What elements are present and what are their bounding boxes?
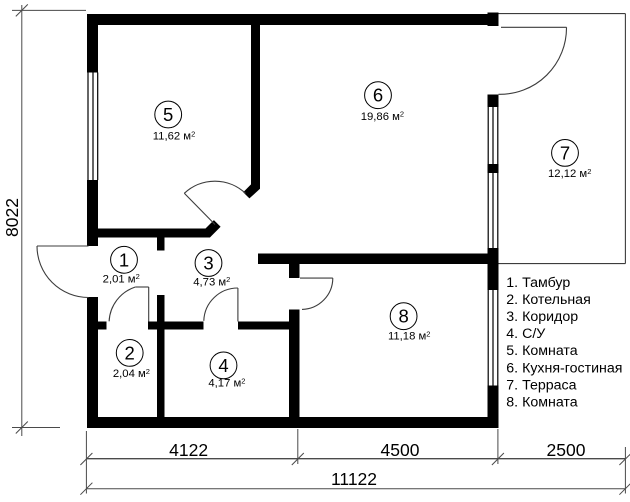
svg-text:3. Коридор: 3. Коридор (506, 309, 578, 325)
svg-text:4122: 4122 (169, 440, 208, 460)
svg-text:8022: 8022 (2, 198, 22, 237)
svg-text:11,62 м2: 11,62 м2 (153, 129, 196, 142)
svg-text:8. Комната: 8. Комната (506, 395, 577, 411)
svg-text:4,73 м2: 4,73 м2 (193, 275, 230, 288)
svg-text:8: 8 (398, 306, 408, 327)
svg-text:19,86 м2: 19,86 м2 (361, 110, 404, 123)
svg-text:2,01 м2: 2,01 м2 (103, 272, 140, 285)
svg-text:7: 7 (560, 142, 570, 163)
svg-text:5: 5 (163, 104, 173, 125)
svg-text:2: 2 (125, 342, 135, 363)
svg-text:1. Тамбур: 1. Тамбур (506, 275, 570, 291)
svg-text:3: 3 (203, 253, 213, 274)
svg-text:2500: 2500 (547, 440, 586, 460)
svg-text:1: 1 (119, 249, 129, 270)
svg-text:4,17 м2: 4,17 м2 (208, 377, 245, 390)
svg-text:11,18 м2: 11,18 м2 (388, 329, 431, 342)
svg-text:4: 4 (218, 355, 228, 376)
svg-text:11122: 11122 (331, 469, 377, 489)
svg-text:12,12 м2: 12,12 м2 (548, 167, 591, 180)
svg-text:6. Кухня-гостиная: 6. Кухня-гостиная (506, 360, 622, 376)
svg-text:2. Котельная: 2. Котельная (506, 292, 590, 308)
svg-text:6: 6 (373, 85, 383, 106)
svg-text:2,04 м2: 2,04 м2 (113, 367, 150, 380)
svg-text:5. Комната: 5. Комната (506, 343, 577, 359)
svg-text:4. С/У: 4. С/У (506, 326, 546, 342)
svg-text:4500: 4500 (381, 440, 420, 460)
svg-text:7. Терраса: 7. Терраса (506, 377, 576, 393)
